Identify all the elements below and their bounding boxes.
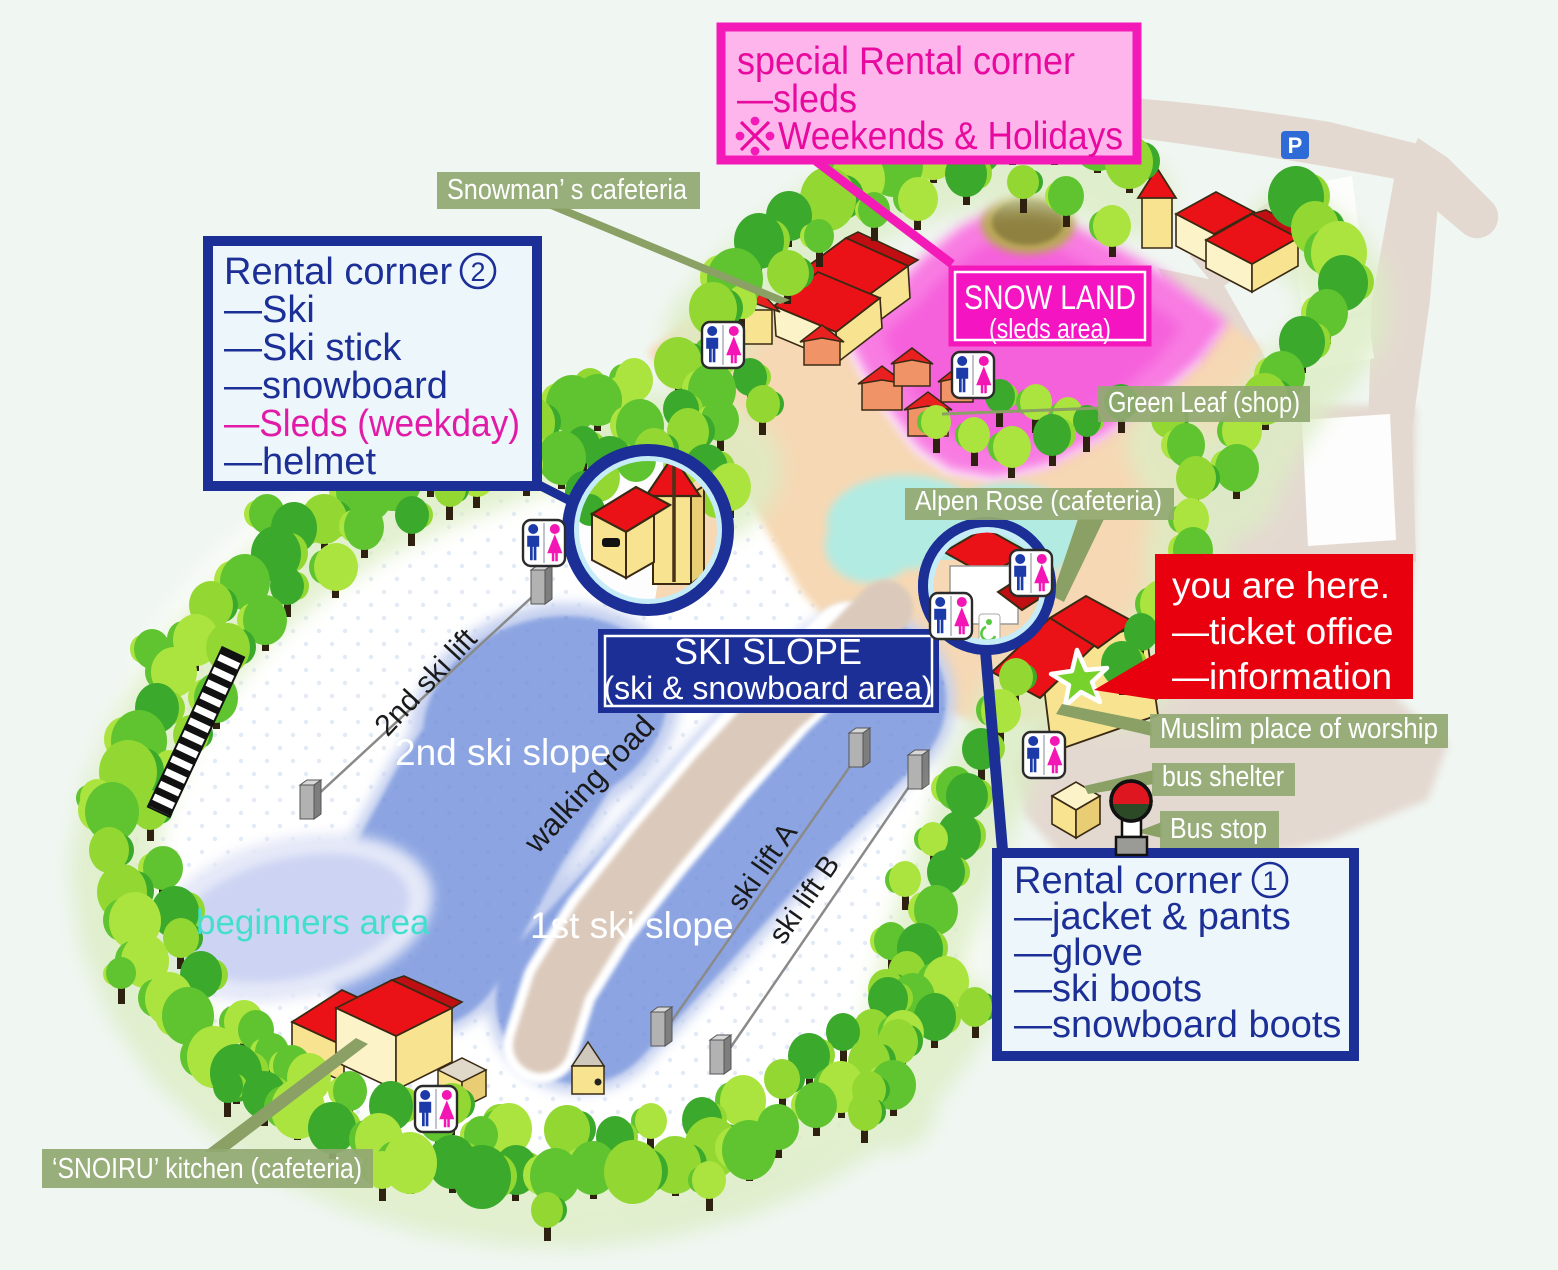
svg-text:1: 1 — [1262, 866, 1277, 896]
svg-text:1st ski slope: 1st ski slope — [530, 905, 734, 946]
svg-text:—Ski stick: —Ski stick — [224, 327, 402, 369]
svg-text:Muslim place of worship: Muslim place of worship — [1160, 713, 1438, 745]
svg-text:special Rental corner: special Rental corner — [737, 40, 1075, 83]
svg-text:—information: —information — [1172, 656, 1392, 697]
svg-text:Bus stop: Bus stop — [1170, 813, 1267, 845]
svg-text:—helmet: —helmet — [224, 441, 376, 483]
svg-text:2nd ski slope: 2nd ski slope — [395, 732, 611, 773]
svg-text:SKI SLOPE: SKI SLOPE — [674, 631, 862, 672]
svg-text:SNOW LAND: SNOW LAND — [964, 279, 1136, 317]
svg-text:—snowboard: —snowboard — [224, 365, 448, 407]
svg-text:Snowman’ s cafeteria: Snowman’ s cafeteria — [447, 174, 688, 206]
svg-text:(sleds area): (sleds area) — [989, 313, 1111, 344]
svg-text:beginners area: beginners area — [196, 903, 430, 942]
svg-text:—snowboard boots: —snowboard boots — [1014, 1004, 1341, 1046]
svg-text:Alpen Rose (cafeteria): Alpen Rose (cafeteria) — [915, 485, 1162, 516]
svg-text:(ski & snowboard area): (ski & snowboard area) — [603, 670, 932, 706]
svg-text:—Sleds (weekday): —Sleds (weekday) — [224, 403, 520, 445]
svg-text:Green Leaf (shop): Green Leaf (shop) — [1108, 387, 1300, 419]
svg-text:‘SNOIRU’ kitchen (cafeteria): ‘SNOIRU’ kitchen (cafeteria) — [52, 1153, 362, 1185]
svg-text:you are here.: you are here. — [1172, 565, 1390, 606]
svg-text:Rental corner: Rental corner — [224, 251, 452, 293]
svg-text:—Ski: —Ski — [224, 289, 315, 331]
svg-text:Weekends & Holidays: Weekends & Holidays — [778, 115, 1123, 158]
svg-text:P: P — [1288, 133, 1303, 158]
svg-text:bus shelter: bus shelter — [1162, 761, 1284, 793]
svg-text:2: 2 — [470, 257, 485, 287]
svg-text:—ticket office: —ticket office — [1172, 611, 1393, 652]
